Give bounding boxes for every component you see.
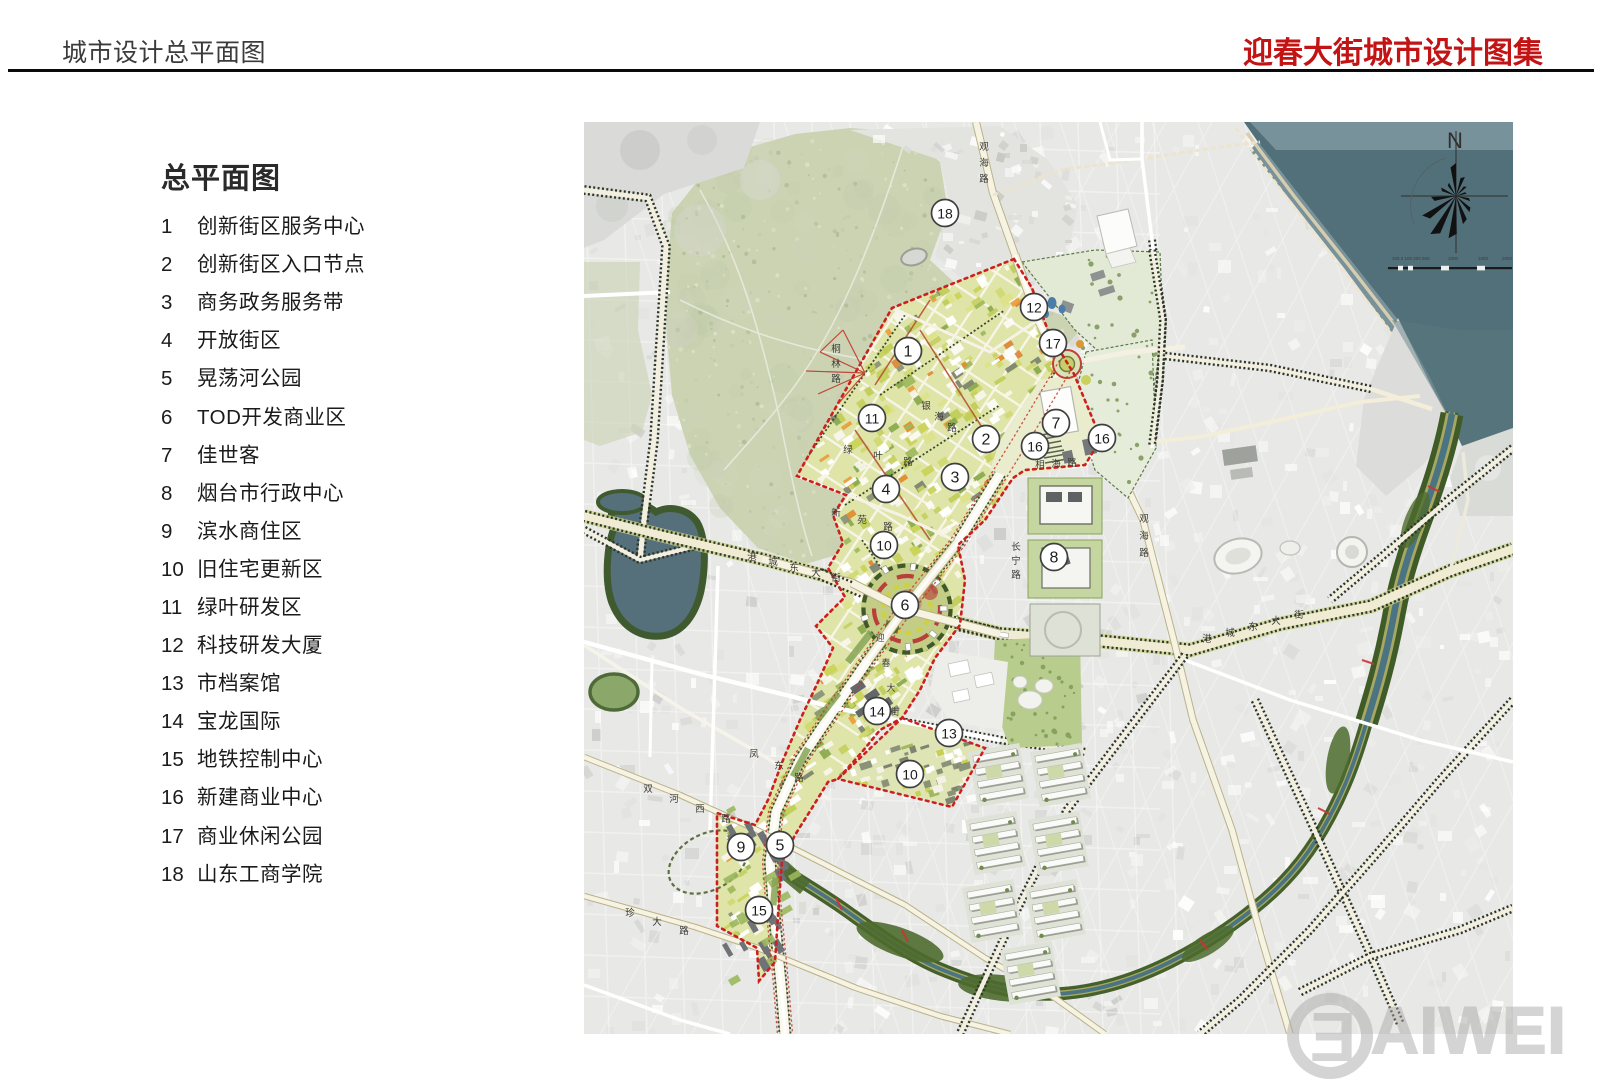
svg-text:东: 东 bbox=[789, 562, 799, 574]
svg-text:叶: 叶 bbox=[873, 451, 883, 462]
svg-text:街: 街 bbox=[890, 706, 899, 717]
svg-text:绿: 绿 bbox=[843, 444, 853, 456]
svg-text:路: 路 bbox=[1011, 569, 1021, 581]
svg-text:17: 17 bbox=[1045, 336, 1061, 352]
svg-text:16: 16 bbox=[1094, 431, 1110, 447]
svg-text:路: 路 bbox=[679, 925, 689, 937]
svg-text:路: 路 bbox=[831, 373, 841, 385]
svg-text:10: 10 bbox=[902, 767, 918, 783]
svg-text:大: 大 bbox=[652, 916, 662, 928]
svg-text:N: N bbox=[1447, 128, 1463, 153]
svg-text:街: 街 bbox=[831, 572, 841, 584]
svg-text:新: 新 bbox=[831, 507, 841, 519]
svg-text:大: 大 bbox=[1271, 615, 1281, 627]
svg-text:路: 路 bbox=[903, 456, 913, 468]
svg-text:河: 河 bbox=[669, 793, 679, 805]
svg-text:西: 西 bbox=[695, 804, 705, 815]
svg-text:海: 海 bbox=[1139, 530, 1149, 542]
svg-text:10: 10 bbox=[876, 538, 892, 554]
svg-text:春: 春 bbox=[881, 657, 890, 668]
svg-text:2: 2 bbox=[982, 432, 991, 449]
svg-text:城: 城 bbox=[768, 557, 778, 568]
svg-text:5: 5 bbox=[776, 838, 785, 855]
svg-text:路: 路 bbox=[947, 422, 957, 434]
svg-text:迎: 迎 bbox=[875, 632, 884, 643]
svg-text:凤: 凤 bbox=[749, 749, 759, 760]
svg-text:城: 城 bbox=[1225, 628, 1235, 639]
svg-text:相: 相 bbox=[1035, 459, 1045, 471]
svg-text:海: 海 bbox=[934, 411, 944, 423]
svg-text:珍: 珍 bbox=[625, 907, 635, 919]
svg-text:100 0 100 200 500: 100 0 100 200 500 bbox=[1392, 256, 1430, 261]
svg-text:8: 8 bbox=[1050, 550, 1059, 567]
svg-text:6: 6 bbox=[901, 598, 910, 615]
svg-text:1500: 1500 bbox=[1478, 256, 1489, 261]
svg-text:林: 林 bbox=[831, 358, 841, 370]
svg-text:观: 观 bbox=[1139, 514, 1149, 525]
svg-text:1: 1 bbox=[904, 344, 913, 361]
svg-text:路: 路 bbox=[1139, 547, 1149, 559]
svg-text:东: 东 bbox=[1248, 621, 1258, 633]
svg-text:宁: 宁 bbox=[1011, 555, 1021, 567]
svg-text:3: 3 bbox=[951, 470, 960, 487]
svg-text:港: 港 bbox=[1202, 633, 1212, 645]
svg-text:路: 路 bbox=[794, 772, 804, 784]
svg-text:海: 海 bbox=[979, 157, 989, 169]
svg-text:桐: 桐 bbox=[831, 343, 841, 355]
svg-text:1000: 1000 bbox=[1448, 256, 1459, 261]
svg-text:18: 18 bbox=[937, 206, 953, 222]
svg-text:11: 11 bbox=[865, 411, 880, 427]
svg-text:路: 路 bbox=[1067, 457, 1077, 469]
svg-text:9: 9 bbox=[737, 840, 746, 857]
svg-text:2000: 2000 bbox=[1502, 256, 1513, 261]
svg-text:街: 街 bbox=[1294, 609, 1304, 621]
svg-text:13: 13 bbox=[941, 726, 957, 742]
svg-text:银: 银 bbox=[921, 400, 931, 412]
svg-text:12: 12 bbox=[1026, 300, 1042, 316]
svg-text:7: 7 bbox=[1052, 416, 1061, 433]
svg-text:14: 14 bbox=[869, 704, 885, 720]
svg-text:路: 路 bbox=[721, 813, 731, 825]
svg-text:路: 路 bbox=[979, 173, 989, 185]
svg-text:4: 4 bbox=[882, 482, 891, 499]
svg-text:16: 16 bbox=[1027, 439, 1043, 455]
svg-text:海: 海 bbox=[1051, 458, 1061, 470]
svg-text:15: 15 bbox=[751, 903, 767, 919]
svg-text:港: 港 bbox=[747, 551, 757, 563]
svg-text:长: 长 bbox=[1011, 541, 1021, 553]
svg-text:苑: 苑 bbox=[857, 514, 867, 526]
svg-text:双: 双 bbox=[643, 784, 653, 795]
svg-text:大: 大 bbox=[811, 567, 821, 579]
svg-text:大: 大 bbox=[886, 682, 895, 693]
svg-text:观: 观 bbox=[979, 142, 989, 153]
svg-text:东: 东 bbox=[774, 760, 784, 772]
